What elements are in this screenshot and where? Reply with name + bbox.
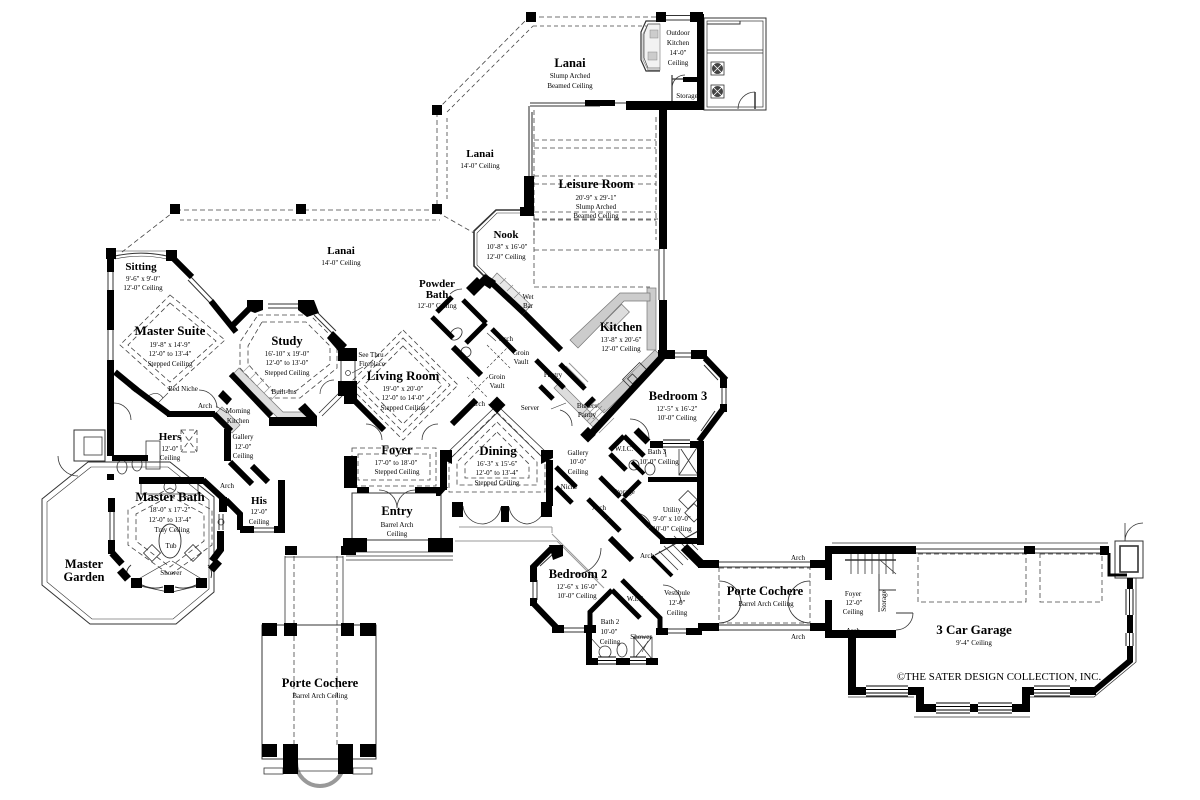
- svg-text:Study: Study: [271, 334, 303, 348]
- svg-text:Groin: Groin: [513, 349, 530, 357]
- svg-text:Beamed Ceiling: Beamed Ceiling: [573, 212, 619, 220]
- svg-text:Dining: Dining: [479, 443, 517, 458]
- svg-text:Arch: Arch: [471, 400, 485, 408]
- svg-text:Morning: Morning: [226, 407, 251, 415]
- svg-text:Arch: Arch: [791, 633, 805, 641]
- svg-text:Ceiling: Ceiling: [387, 530, 408, 538]
- svg-text:Kitchen: Kitchen: [667, 39, 690, 47]
- svg-text:19'-0" x 20'-0": 19'-0" x 20'-0": [383, 385, 424, 393]
- svg-text:Bedroom 3: Bedroom 3: [649, 389, 707, 403]
- svg-text:Ceiling: Ceiling: [568, 468, 589, 476]
- svg-text:Stepped Ceiling: Stepped Ceiling: [475, 479, 520, 487]
- svg-text:Porte Cochere: Porte Cochere: [282, 676, 359, 690]
- svg-text:12'-0" Ceiling: 12'-0" Ceiling: [417, 302, 457, 310]
- svg-text:Arch: Arch: [846, 627, 860, 635]
- svg-text:20'-9" x 29'-1": 20'-9" x 29'-1": [576, 194, 617, 202]
- svg-text:Master Bath: Master Bath: [135, 489, 205, 504]
- svg-text:Server: Server: [521, 404, 540, 412]
- svg-text:Foyer: Foyer: [381, 443, 413, 457]
- svg-text:10'-0": 10'-0": [570, 458, 587, 466]
- svg-text:Porte Cochere: Porte Cochere: [727, 584, 804, 598]
- svg-text:3 Car Garage: 3 Car Garage: [936, 622, 1012, 637]
- svg-text:12'-0" Ceiling: 12'-0" Ceiling: [601, 345, 641, 353]
- svg-text:12'-0" Ceiling: 12'-0" Ceiling: [486, 253, 526, 261]
- svg-text:Outdoor: Outdoor: [666, 29, 690, 37]
- svg-text:Bedroom 2: Bedroom 2: [549, 567, 607, 581]
- svg-text:12'-5" x 16'-2": 12'-5" x 16'-2": [657, 405, 698, 413]
- svg-text:Pantry: Pantry: [578, 411, 597, 419]
- svg-text:Ceiling: Ceiling: [233, 452, 254, 460]
- svg-text:Gallery: Gallery: [233, 433, 254, 441]
- svg-text:Kitchen: Kitchen: [227, 417, 250, 425]
- svg-text:Bath: Bath: [426, 289, 449, 301]
- svg-text:Beamed Ceiling: Beamed Ceiling: [547, 82, 593, 90]
- svg-text:17'-0" to 18'-0": 17'-0" to 18'-0": [375, 459, 418, 467]
- svg-text:Vestibule: Vestibule: [664, 589, 690, 597]
- svg-text:Tub: Tub: [165, 542, 177, 550]
- svg-text:Kitchen: Kitchen: [600, 320, 642, 334]
- svg-text:14'-0": 14'-0": [670, 49, 687, 57]
- svg-text:Butlers: Butlers: [577, 402, 597, 410]
- svg-text:See Thru: See Thru: [358, 351, 384, 359]
- svg-text:Stepped Ceiling: Stepped Ceiling: [381, 404, 426, 412]
- svg-text:12'-0": 12'-0": [235, 443, 252, 451]
- svg-text:Utility: Utility: [663, 506, 682, 514]
- svg-text:12'-0": 12'-0": [162, 445, 179, 453]
- svg-text:©THE SATER DESIGN COLLECTION,: ©THE SATER DESIGN COLLECTION, INC.: [897, 671, 1101, 683]
- svg-text:Shower: Shower: [160, 569, 182, 577]
- svg-text:Slump Arched: Slump Arched: [550, 72, 591, 80]
- svg-text:14'-0" Ceiling: 14'-0" Ceiling: [321, 259, 361, 267]
- svg-text:Arch: Arch: [220, 482, 234, 490]
- svg-text:Tray Ceiling: Tray Ceiling: [154, 526, 190, 534]
- svg-text:9'-6" x 9'-0": 9'-6" x 9'-0": [126, 275, 160, 283]
- svg-text:12'-6" x 16'-0": 12'-6" x 16'-0": [557, 583, 598, 591]
- svg-text:Ceiling: Ceiling: [160, 454, 181, 462]
- svg-text:Bed Niche: Bed Niche: [168, 385, 198, 393]
- svg-text:Nook: Nook: [493, 229, 519, 241]
- svg-text:10'-0": 10'-0": [601, 628, 618, 636]
- svg-text:Ceiling: Ceiling: [668, 59, 689, 67]
- svg-text:12'-0" to 13'-4": 12'-0" to 13'-4": [149, 516, 192, 524]
- svg-text:W.I.C.: W.I.C.: [627, 595, 645, 603]
- svg-text:Arch: Arch: [499, 335, 513, 343]
- svg-text:Master Suite: Master Suite: [135, 323, 206, 338]
- svg-text:Foyer: Foyer: [845, 590, 862, 598]
- svg-text:Entry: Entry: [381, 504, 413, 518]
- svg-text:Bath 2: Bath 2: [601, 618, 620, 626]
- svg-text:Slump Arched: Slump Arched: [576, 203, 617, 211]
- svg-text:Storage: Storage: [613, 488, 634, 496]
- svg-text:12'-0": 12'-0": [251, 508, 268, 516]
- svg-text:Wet: Wet: [522, 293, 533, 301]
- svg-text:9'-4" Ceiling: 9'-4" Ceiling: [956, 639, 992, 647]
- svg-text:10'-0" Ceiling: 10'-0" Ceiling: [557, 592, 597, 600]
- svg-text:12'-0": 12'-0": [669, 599, 686, 607]
- svg-text:Sitting: Sitting: [125, 261, 157, 273]
- svg-text:Pantry: Pantry: [544, 371, 563, 379]
- svg-text:Lanai: Lanai: [554, 56, 586, 70]
- svg-text:16'-3" x 15'-6": 16'-3" x 15'-6": [477, 460, 518, 468]
- svg-text:Hers: Hers: [159, 431, 182, 443]
- svg-text:13'-8" x 20'-6": 13'-8" x 20'-6": [601, 336, 642, 344]
- svg-text:Vault: Vault: [490, 382, 505, 390]
- svg-text:Arch: Arch: [592, 504, 606, 512]
- svg-text:Lanai: Lanai: [466, 148, 494, 160]
- svg-text:Barrel Arch: Barrel Arch: [381, 521, 414, 529]
- svg-text:Master: Master: [65, 557, 104, 571]
- svg-text:Arch: Arch: [198, 402, 212, 410]
- svg-text:His: His: [251, 495, 268, 507]
- svg-text:Barrel Arch Ceiling: Barrel Arch Ceiling: [292, 692, 348, 700]
- svg-text:Living Room: Living Room: [367, 368, 440, 383]
- svg-text:Storage: Storage: [880, 590, 888, 611]
- svg-text:10'-0" Ceiling: 10'-0" Ceiling: [657, 414, 697, 422]
- svg-text:Built-Ins: Built-Ins: [272, 388, 297, 396]
- svg-text:Gallery: Gallery: [568, 449, 589, 457]
- svg-text:Ceiling: Ceiling: [843, 608, 864, 616]
- svg-text:Leisure Room: Leisure Room: [558, 177, 634, 191]
- svg-text:Stepped Ceiling: Stepped Ceiling: [375, 468, 420, 476]
- svg-text:16'-10" x 19'-0": 16'-10" x 19'-0": [265, 350, 310, 358]
- svg-text:12'-0" to 14'-0": 12'-0" to 14'-0": [382, 394, 425, 402]
- svg-text:9'-0" x 10'-0": 9'-0" x 10'-0": [653, 515, 691, 523]
- svg-text:10'-0" Ceiling: 10'-0" Ceiling: [652, 525, 692, 533]
- svg-text:19'-8" x 14'-9": 19'-8" x 14'-9": [150, 341, 191, 349]
- svg-text:Bar: Bar: [523, 302, 534, 310]
- svg-text:Barrel Arch Ceiling: Barrel Arch Ceiling: [738, 600, 794, 608]
- svg-text:Niche: Niche: [561, 483, 578, 491]
- svg-text:W.I.C.: W.I.C.: [615, 445, 633, 453]
- svg-text:Fireplace: Fireplace: [359, 360, 385, 368]
- svg-text:Ceiling: Ceiling: [600, 638, 621, 646]
- svg-text:10'-0" Ceiling: 10'-0" Ceiling: [639, 458, 679, 466]
- svg-text:12'-0" to 13'-4": 12'-0" to 13'-4": [149, 350, 192, 358]
- svg-text:Ceiling: Ceiling: [249, 518, 270, 526]
- svg-text:Shower: Shower: [630, 633, 652, 641]
- svg-text:Garden: Garden: [64, 570, 105, 584]
- svg-text:10'-8" x 16'-0": 10'-8" x 16'-0": [487, 243, 528, 251]
- svg-text:Ceiling: Ceiling: [667, 609, 688, 617]
- svg-text:Stepped Ceiling: Stepped Ceiling: [265, 369, 310, 377]
- svg-text:Storage: Storage: [676, 92, 697, 100]
- svg-text:Bath 3: Bath 3: [648, 448, 667, 456]
- svg-text:Vault: Vault: [514, 358, 529, 366]
- svg-text:12'-0" to 13'-0": 12'-0" to 13'-0": [266, 359, 309, 367]
- svg-text:Stepped Ceiling: Stepped Ceiling: [148, 360, 193, 368]
- svg-text:12'-0": 12'-0": [846, 599, 863, 607]
- svg-text:18'-0" x 17'-2": 18'-0" x 17'-2": [150, 506, 191, 514]
- svg-text:Arch: Arch: [791, 554, 805, 562]
- svg-text:12'-0" Ceiling: 12'-0" Ceiling: [123, 284, 163, 292]
- svg-text:Arch: Arch: [640, 552, 654, 560]
- svg-text:12'-0" to 13'-4": 12'-0" to 13'-4": [476, 469, 519, 477]
- svg-text:Lanai: Lanai: [327, 245, 355, 257]
- svg-text:14'-0" Ceiling: 14'-0" Ceiling: [460, 162, 500, 170]
- svg-text:Groin: Groin: [489, 373, 506, 381]
